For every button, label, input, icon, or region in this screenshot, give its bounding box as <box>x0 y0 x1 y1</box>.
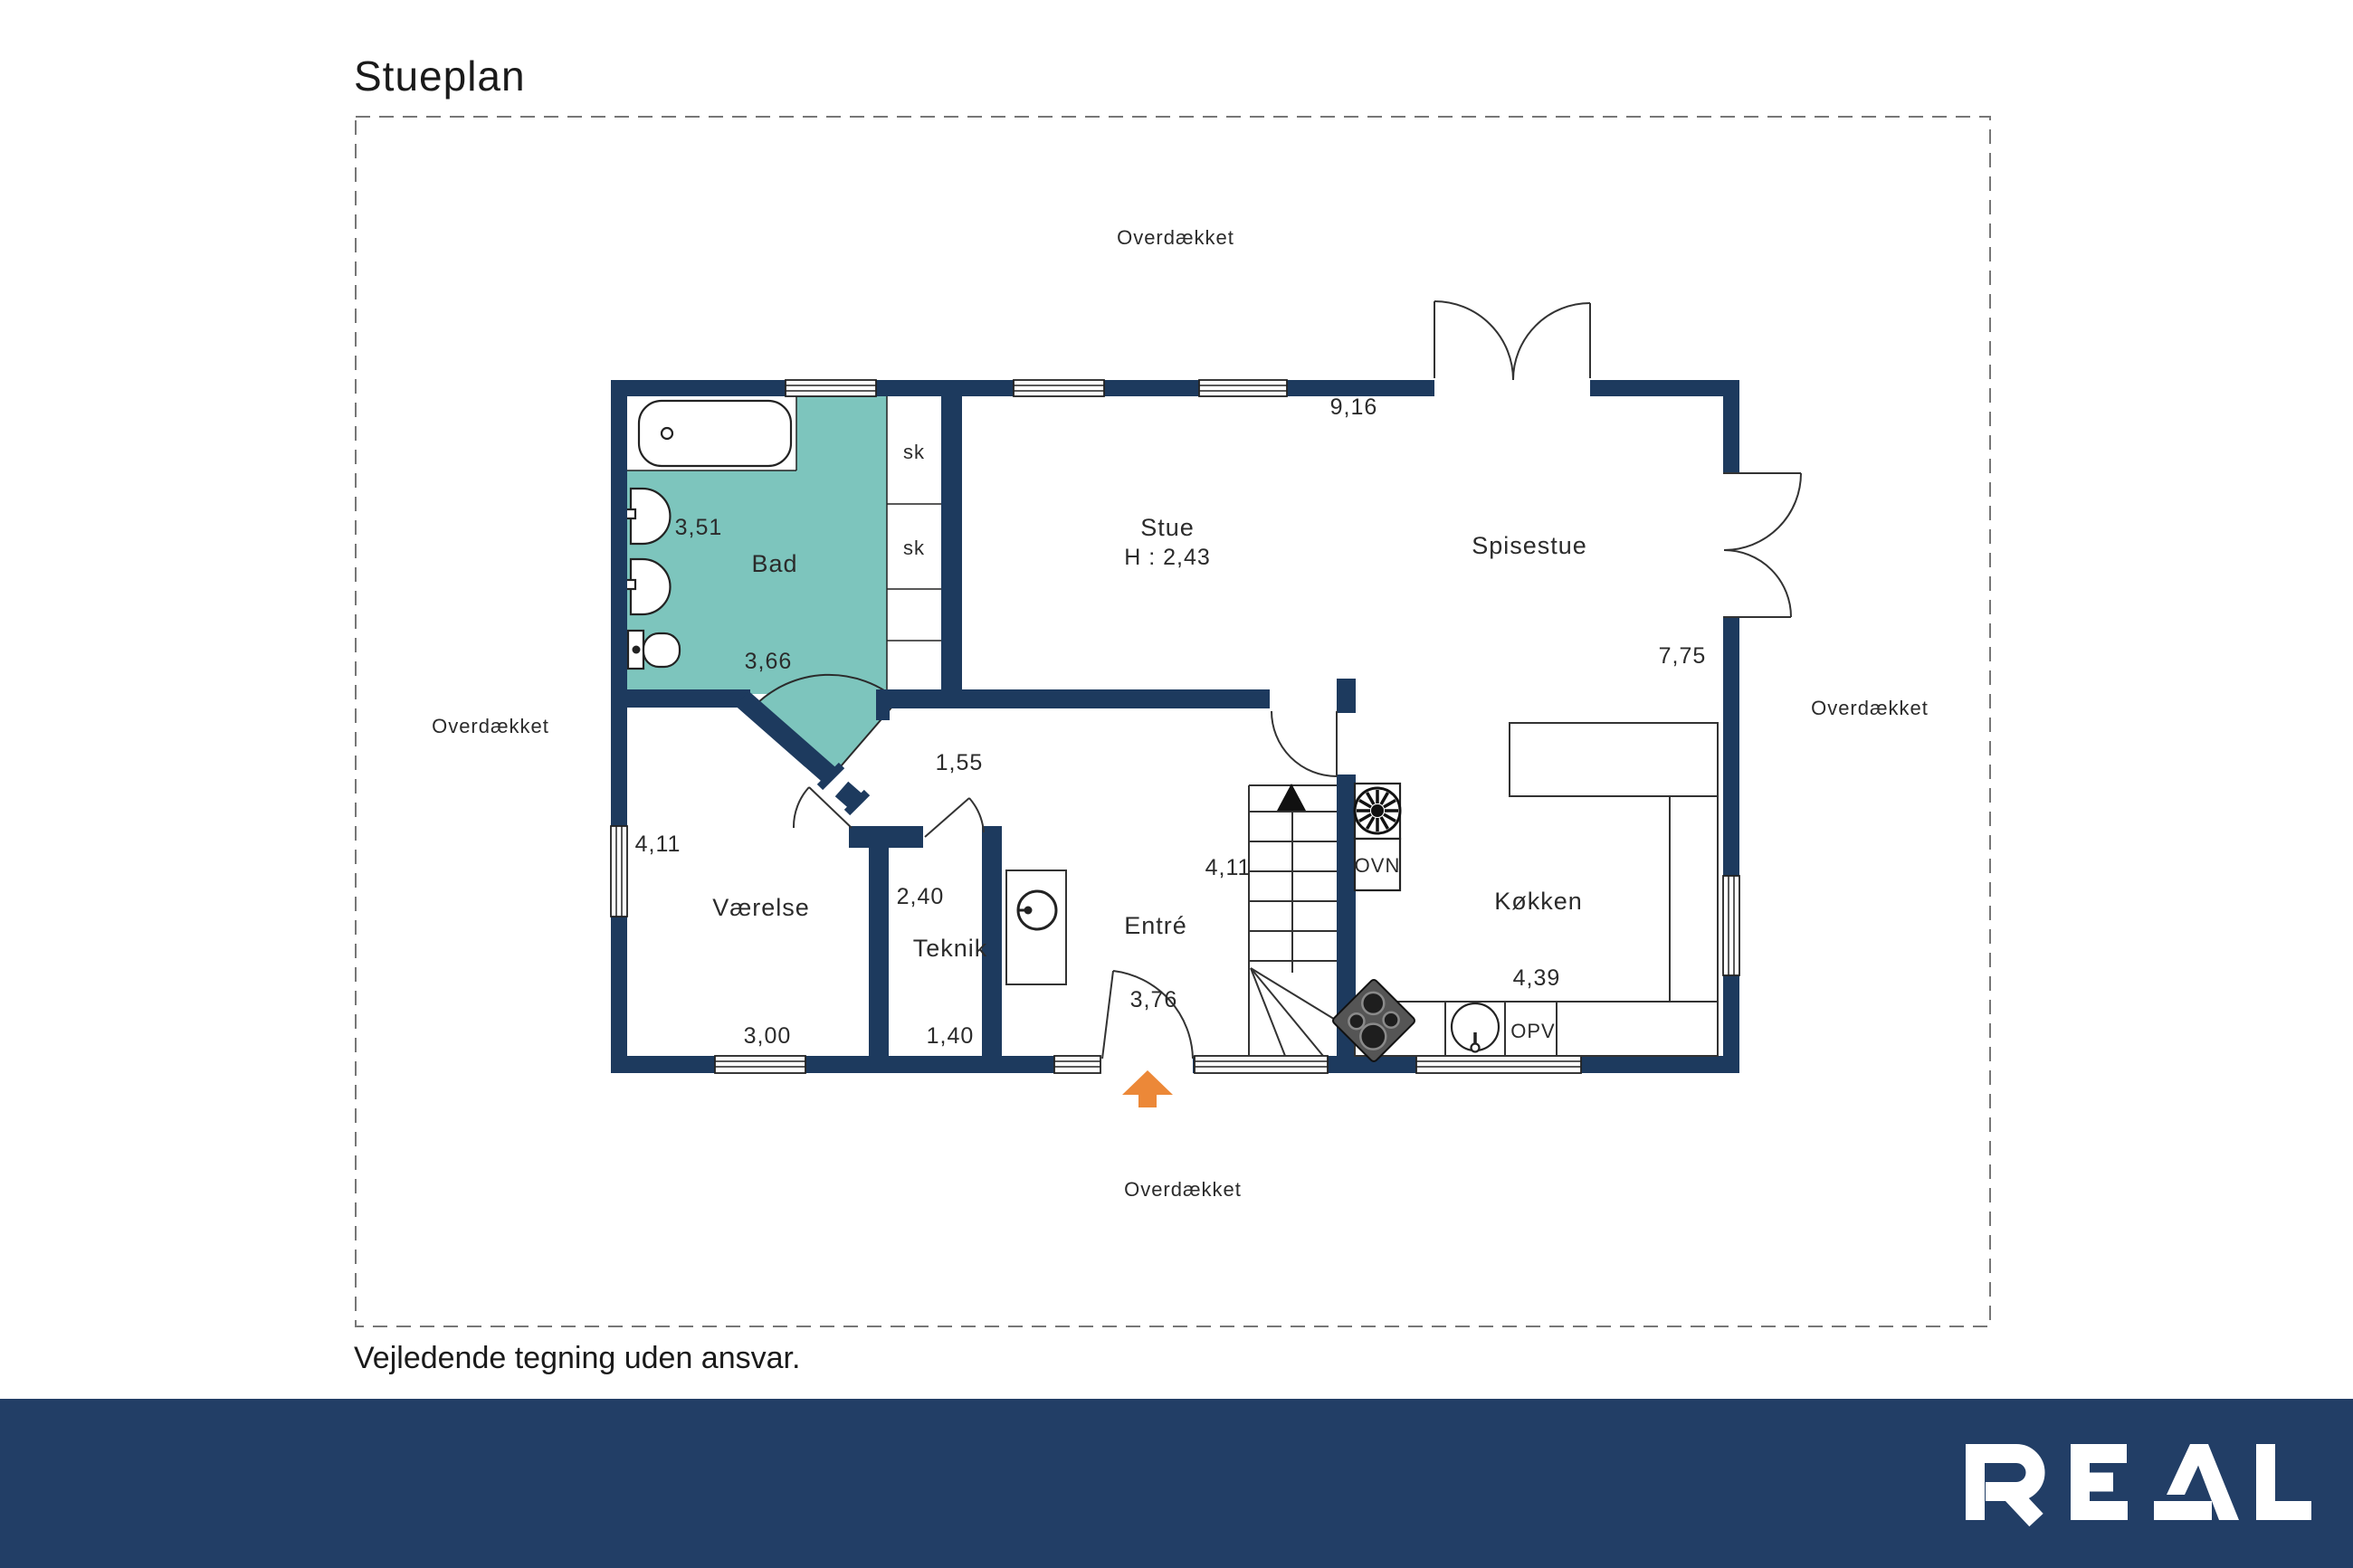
closet-label: sk <box>903 537 925 559</box>
covered-label-bottom: Overdækket <box>1124 1178 1242 1201</box>
window <box>1199 380 1287 396</box>
entre-width: 3,76 <box>1130 987 1178 1012</box>
window <box>786 380 876 396</box>
stairs-depth: 4,11 <box>1205 855 1252 880</box>
vaerelse-depth: 4,11 <box>635 832 681 857</box>
hall-width: 1,55 <box>936 750 984 775</box>
window <box>611 826 627 917</box>
disclaimer-text: Vejledende tegning uden ansvar. <box>354 1341 800 1375</box>
room-label-koekken: Køkken <box>1494 888 1583 915</box>
room-label-bad: Bad <box>751 550 797 577</box>
window <box>1054 1056 1100 1073</box>
covered-label-right: Overdækket <box>1811 697 1929 719</box>
page-title: Stueplan <box>354 52 526 100</box>
oven-label: OVN <box>1355 854 1401 877</box>
entrance-arrow-icon <box>1122 1070 1173 1107</box>
water-heater-icon <box>1006 870 1066 984</box>
room-label-spisestue: Spisestue <box>1472 532 1587 559</box>
window <box>1195 1056 1328 1073</box>
closet-label: sk <box>903 441 925 463</box>
floor-plan-page: Stueplan <box>0 0 2353 1568</box>
room-label-stue: Stue <box>1140 514 1195 541</box>
window <box>1723 876 1739 975</box>
covered-label-top: Overdækket <box>1117 226 1234 249</box>
dishwasher-label: OPV <box>1510 1020 1555 1042</box>
window <box>715 1056 805 1073</box>
floorplan <box>611 301 1801 1107</box>
vaerelse-width: 3,00 <box>744 1023 792 1049</box>
window <box>1416 1056 1581 1073</box>
room-label-vaerelse: Værelse <box>712 894 810 921</box>
koekken-width: 4,39 <box>1513 965 1561 991</box>
room-label-entre: Entré <box>1124 912 1187 939</box>
teknik-depth: 2,40 <box>897 884 945 909</box>
bathtub-icon <box>639 401 791 466</box>
kitchen-sink-icon <box>1452 1003 1499 1052</box>
window <box>1014 380 1104 396</box>
spisestue-depth: 7,75 <box>1659 643 1707 669</box>
room-label-teknik: Teknik <box>913 935 988 962</box>
covered-label-left: Overdækket <box>432 715 549 737</box>
stue-ceiling-height: H : 2,43 <box>1124 545 1211 570</box>
stue-width: 9,16 <box>1330 394 1378 420</box>
teknik-width: 1,40 <box>927 1023 975 1049</box>
bad-depth: 3,66 <box>745 649 793 674</box>
extractor-fan-icon <box>1355 788 1400 833</box>
bad-width: 3,51 <box>675 515 723 540</box>
toilet-icon <box>628 631 680 669</box>
